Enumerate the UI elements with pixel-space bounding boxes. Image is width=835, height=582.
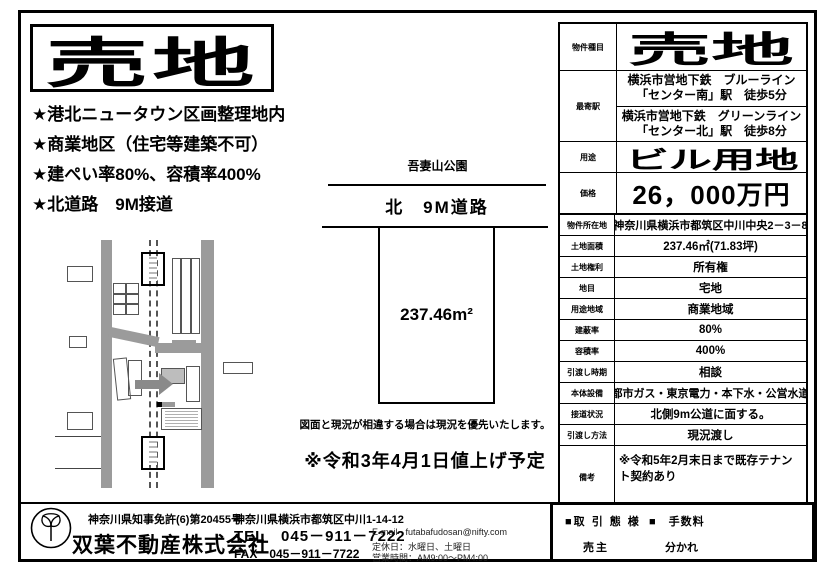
map-building-block [113, 283, 139, 315]
row-value: 宅地 [615, 278, 806, 298]
row-label: 接道状況 [560, 404, 615, 424]
property-details-table: 物件所在地 神奈川県横浜市都筑区中川中央2－3－8 土地面積 237.46㎡(7… [558, 213, 808, 510]
row-label: 用途地域 [560, 299, 615, 319]
plot-outline: 237.46m² [378, 227, 495, 404]
email-label: E-mail [372, 527, 398, 537]
row-label: 最寄駅 [560, 71, 617, 141]
company-fax: FAX 045－911－7722 [234, 545, 359, 562]
map-floor-note [157, 402, 175, 407]
table-row: 引渡し方法 現況渡し [560, 424, 806, 445]
company-email: E-mailfutabafudosan@nifty.com [372, 527, 507, 537]
deal-type-value: 売主 [583, 539, 609, 555]
row-label: 容積率 [560, 341, 615, 361]
map-street-line [55, 468, 101, 469]
fee-value: 分かれ [665, 539, 698, 555]
station-line: 横浜市営地下鉄 グリーンライン [622, 109, 801, 124]
use-value: ビル用地 [625, 142, 798, 172]
table-row: 接道状況 北側9m公道に面する。 [560, 403, 806, 424]
price-raise-notice: ※令和3年4月1日値上げ予定 [298, 447, 552, 473]
transaction-box: ■取 引 態 様 ■ 手数料 売主 分かれ [550, 502, 815, 562]
station-line: 横浜市営地下鉄 ブルーライン [627, 73, 795, 88]
row-value: 400% [615, 341, 806, 361]
row-label: 建蔽率 [560, 320, 615, 340]
summary-row-type: 物件種目 売地 [560, 24, 806, 70]
row-label: 地目 [560, 278, 615, 298]
map-road-left [101, 240, 112, 488]
highlight-item: ★港北ニュータウン区画整理地内 [32, 100, 302, 130]
map-road-diagonal [109, 327, 160, 347]
map-building-block [172, 258, 200, 334]
north-road-label: 北 9M道路 [328, 193, 546, 218]
map-road-right [201, 240, 214, 488]
table-row: 容積率 400% [560, 340, 806, 361]
map-arrow-icon [159, 373, 173, 395]
road-top-line [328, 184, 546, 186]
map-building-shaded [172, 340, 196, 348]
station-entry: 横浜市営地下鉄 ブルーライン 「センター南」駅 徒歩5分 [617, 71, 806, 106]
row-label: 備考 [560, 446, 615, 508]
map-label-callout [223, 362, 253, 374]
summary-row-stations: 最寄駅 横浜市営地下鉄 ブルーライン 「センター南」駅 徒歩5分 横浜市営地下鉄… [560, 70, 806, 141]
map-street-line [55, 436, 101, 437]
row-label: 用途 [560, 142, 617, 172]
diagram-disclaimer: 図面と現況が相違する場合は現況を優先いたします。 [298, 417, 552, 432]
table-row: 用途地域 商業地域 [560, 298, 806, 319]
table-row: 建蔽率 80% [560, 319, 806, 340]
row-value: ※令和5年2月末日まで既存テナント契約あり [615, 446, 806, 508]
table-row: 土地権利 所有権 [560, 256, 806, 277]
company-logo [30, 507, 72, 549]
row-value: 相談 [615, 362, 806, 382]
station-line: 「センター南」駅 徒歩5分 [636, 88, 787, 103]
row-value: 所有権 [615, 257, 806, 277]
row-label: 引渡し方法 [560, 425, 615, 445]
price-value: 26，000万円 [632, 175, 790, 212]
map-building-block [186, 366, 200, 402]
map-station-south [141, 436, 165, 470]
row-value: 現況渡し [615, 425, 806, 445]
row-label: 土地面積 [560, 236, 615, 256]
row-label: 物件所在地 [560, 215, 615, 235]
deal-type-label: ■取 引 態 様 [565, 513, 641, 529]
row-value: 237.46㎡(71.83坪) [615, 236, 806, 256]
title-box: 売地 [30, 24, 274, 92]
highlight-item: ★建ぺい率80%、容積率400% [32, 160, 302, 190]
map-building-block [128, 360, 142, 396]
table-row: 地目 宅地 [560, 277, 806, 298]
table-row: 本体設備 都市ガス・東京電力・本下水・公営水道 [560, 382, 806, 403]
table-row: 物件所在地 神奈川県横浜市都筑区中川中央2－3－8 [560, 215, 806, 235]
row-label: 価格 [560, 173, 617, 213]
highlight-item: ★北道路 9M接道 [32, 190, 302, 220]
row-value: 80% [615, 320, 806, 340]
table-row: 土地面積 237.46㎡(71.83坪) [560, 235, 806, 256]
location-map [55, 240, 290, 488]
row-label: 物件種目 [560, 24, 617, 70]
summary-row-use: 用途 ビル用地 [560, 141, 806, 172]
row-label: 本体設備 [560, 383, 615, 403]
property-summary-table: 物件種目 売地 最寄駅 横浜市営地下鉄 ブルーライン 「センター南」駅 徒歩5分… [558, 22, 808, 215]
map-label-callout [67, 412, 93, 430]
highlight-item: ★商業地区（住宅等建築不可） [32, 130, 302, 160]
row-value: 都市ガス・東京電力・本下水・公営水道 [615, 383, 806, 403]
plot-area-label: 237.46m² [400, 305, 473, 325]
map-label-callout [67, 266, 93, 282]
property-type-value: 売地 [629, 24, 795, 70]
map-label-callout [69, 336, 87, 348]
highlight-list: ★港北ニュータウン区画整理地内 ★商業地区（住宅等建築不可） ★建ぺい率80%、… [32, 100, 302, 220]
row-label: 引渡し時期 [560, 362, 615, 382]
business-hours: 営業時間：AM9:00～PM4:00 [372, 551, 488, 564]
map-arrow-icon [135, 380, 159, 389]
table-row: 引渡し時期 相談 [560, 361, 806, 382]
license-number: 神奈川県知事免許(6)第20455号 [88, 511, 242, 527]
fee-label: ■ 手数料 [649, 513, 705, 529]
station-entry: 横浜市営地下鉄 グリーンライン 「センター北」駅 徒歩8分 [617, 106, 806, 142]
row-value: 北側9m公道に面する。 [615, 404, 806, 424]
flyer-page: 売地 ★港北ニュータウン区画整理地内 ★商業地区（住宅等建築不可） ★建ぺい率8… [0, 0, 835, 582]
email-address: futabafudosan@nifty.com [406, 527, 508, 537]
summary-row-price: 価格 26，000万円 [560, 172, 806, 213]
park-label: 吾妻山公園 [330, 157, 545, 174]
row-value: 商業地域 [615, 299, 806, 319]
row-label: 土地権利 [560, 257, 615, 277]
station-line: 「センター北」駅 徒歩8分 [636, 124, 787, 139]
page-title: 売地 [46, 19, 259, 98]
table-row: 備考 ※令和5年2月末日まで既存テナント契約あり [560, 445, 806, 508]
map-ramen-shop-box [161, 408, 202, 430]
map-station-north [141, 252, 165, 286]
row-value: 神奈川県横浜市都筑区中川中央2－3－8 [615, 215, 806, 235]
